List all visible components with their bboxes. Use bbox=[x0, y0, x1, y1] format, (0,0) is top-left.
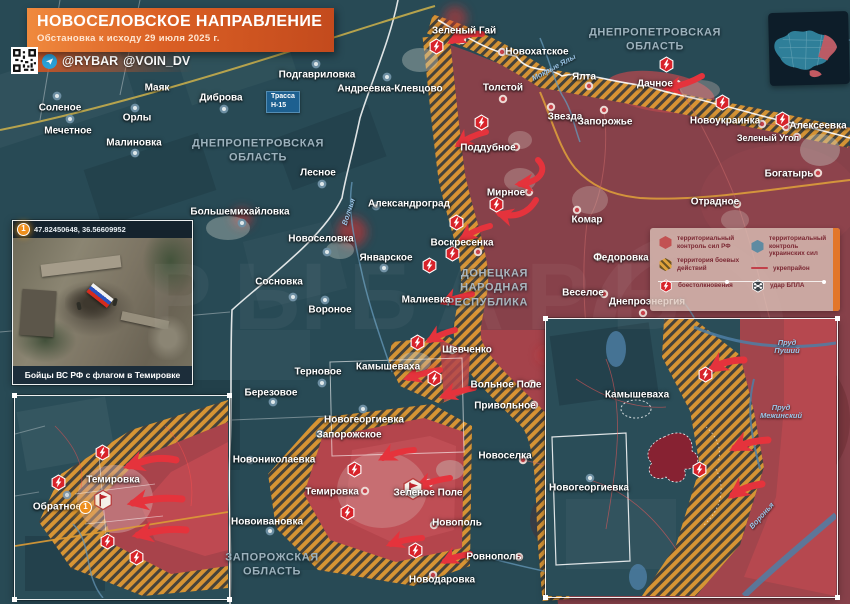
legend-ua-control: территориальный контроль украинских сил bbox=[769, 235, 835, 258]
location-marker-1: 1 bbox=[17, 223, 30, 236]
legend-divider bbox=[658, 281, 826, 282]
credits-bar: @RYBAR @VOIN_DV bbox=[38, 51, 193, 72]
ua-control-swatch bbox=[751, 240, 764, 253]
road-sign-line2: Н-15 bbox=[271, 102, 295, 111]
map-subtitle: Обстановка к исходу 29 июля 2025 г. bbox=[37, 33, 324, 44]
legend-combat-zone: территория боевых действий bbox=[677, 257, 747, 272]
situation-map: РЫБАРЬ НОВОСЕЛОВСКОЕ НАПРАВЛЕНИЕ Обстано… bbox=[0, 0, 850, 604]
ukraine-map bbox=[768, 16, 850, 82]
qr-pattern bbox=[13, 49, 36, 72]
road-sign-line1: Трасса bbox=[271, 93, 295, 102]
temirovka-inset-map bbox=[15, 396, 228, 598]
road-sign-h15: Трасса Н-15 bbox=[266, 91, 300, 113]
ukraine-overview-inset bbox=[768, 11, 850, 86]
legend-uav: удар БПЛА bbox=[770, 282, 804, 290]
title-banner: НОВОСЕЛОВСКОЕ НАПРАВЛЕНИЕ Обстановка к и… bbox=[27, 8, 334, 52]
rf-control-swatch bbox=[659, 236, 672, 249]
kamyshevakha-inset-map bbox=[546, 319, 836, 596]
location-marker-1: 1 bbox=[79, 501, 92, 514]
telegram-handle-voindv: @VOIN_DV bbox=[123, 55, 190, 68]
drone-photo bbox=[13, 238, 192, 366]
photo-inset: 1 47.82450648, 36.56609952 Бойцы ВС РФ с… bbox=[12, 220, 193, 385]
temirovka-inset bbox=[14, 395, 230, 600]
legend-clashes: боестолкновения bbox=[678, 282, 733, 290]
fortified-line-swatch bbox=[751, 267, 768, 269]
qr-code bbox=[11, 47, 38, 74]
photo-caption: Бойцы ВС РФ с флагом в Темировке bbox=[13, 366, 192, 384]
map-title: НОВОСЕЛОВСКОЕ НАПРАВЛЕНИЕ bbox=[37, 13, 324, 31]
legend-rf-control: территориальный контроль сил РФ bbox=[677, 235, 747, 250]
map-legend: территориальный контроль сил РФ территор… bbox=[650, 228, 840, 311]
kamyshevakha-inset bbox=[545, 318, 838, 598]
photo-coords-bar: 1 47.82450648, 36.56609952 bbox=[13, 221, 192, 238]
combat-zone-swatch bbox=[659, 258, 672, 271]
legend-fortified: укрепрайон bbox=[773, 265, 810, 273]
legend-accent-bar bbox=[833, 228, 840, 311]
soldier-figure bbox=[112, 298, 118, 307]
crimea-shape bbox=[810, 70, 822, 77]
photo-coordinates: 47.82450648, 36.56609952 bbox=[34, 226, 126, 234]
telegram-icon bbox=[42, 54, 57, 69]
telegram-handle-rybar: @RYBAR bbox=[62, 55, 118, 68]
